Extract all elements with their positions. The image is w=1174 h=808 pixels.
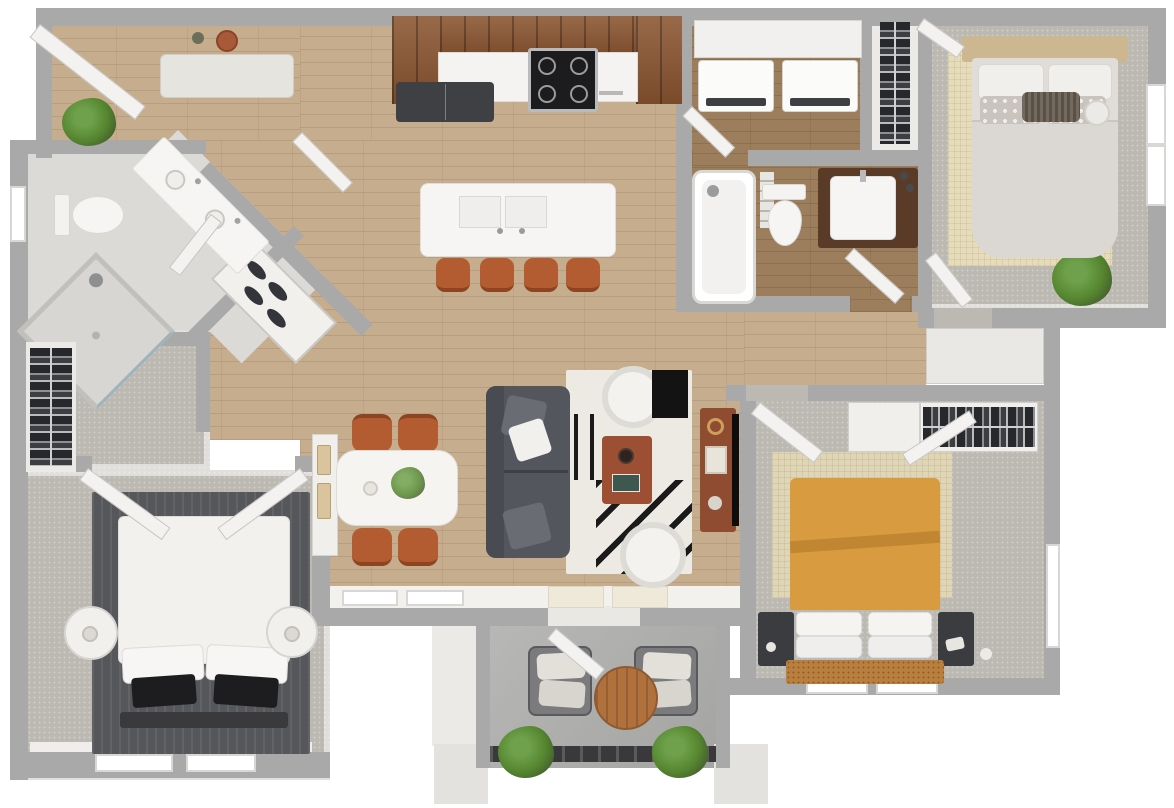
shower-head <box>707 185 719 197</box>
pillow <box>868 612 932 636</box>
centerpiece-plant <box>391 467 425 499</box>
vanity-sink <box>830 176 896 240</box>
entry-bench <box>160 54 294 98</box>
closet-rod <box>923 426 1035 428</box>
dining-chair <box>352 528 392 566</box>
shelf-item <box>241 283 266 308</box>
dried-flower-decor <box>980 648 992 660</box>
cutting-board <box>317 483 331 519</box>
barrel-chair <box>620 522 686 588</box>
shower-head <box>86 270 106 290</box>
toilet-tank <box>762 184 806 200</box>
coffee-table <box>602 436 652 504</box>
woven-headboard <box>786 660 944 684</box>
bedroom2-bed <box>118 516 290 742</box>
entry-sprig-decor <box>192 32 204 44</box>
wall-bedroom2-left <box>10 470 28 780</box>
range-stove <box>528 48 598 112</box>
round-wood-table <box>594 666 658 730</box>
dining-table <box>336 450 458 526</box>
bedroom1-plant <box>1052 250 1112 306</box>
pillow <box>796 636 862 658</box>
balcony-wall-right <box>716 618 730 768</box>
black-accent-table <box>652 370 688 418</box>
wall-living-bottom-left <box>312 608 548 626</box>
burner <box>570 57 588 75</box>
dining-wall-console <box>312 434 338 556</box>
rug-stripes-small <box>574 414 604 480</box>
table-cup <box>363 481 378 496</box>
shower-drain <box>90 330 101 341</box>
pillow <box>868 636 932 658</box>
island-faucet <box>497 228 503 234</box>
shelf-item <box>264 306 289 331</box>
bar-stool <box>480 258 514 292</box>
island-sink <box>459 196 501 228</box>
refrigerator <box>396 82 494 122</box>
nightstand-cup <box>284 626 300 642</box>
burner <box>538 57 556 75</box>
washer-controls <box>706 98 766 106</box>
doormat <box>548 586 604 608</box>
floor-plan-canvas <box>0 0 1174 808</box>
foot-bench <box>120 712 288 728</box>
doormat <box>612 586 668 608</box>
media-console <box>700 408 736 532</box>
dryer <box>782 60 858 112</box>
orange-duvet <box>790 478 940 610</box>
nightstand <box>938 612 974 666</box>
vanity-faucet <box>860 170 866 182</box>
laundry-shelf <box>694 20 862 58</box>
vanity-accessory <box>900 172 908 180</box>
bar-stool <box>566 258 600 292</box>
fridge-door-split <box>445 84 446 120</box>
towel-roll <box>1084 100 1110 126</box>
round-nightstand <box>64 606 118 660</box>
dining-chair <box>352 414 392 452</box>
living-window-2 <box>406 590 464 606</box>
nightstand-decor <box>945 636 965 651</box>
balcony-door-threshold <box>548 606 640 626</box>
duvet-fold <box>790 531 940 553</box>
console-decor-vase <box>708 496 722 510</box>
bathroom1-toilet <box>54 192 126 238</box>
sofa-cushion-split <box>504 470 568 473</box>
balcony-planter <box>652 726 708 778</box>
sofa <box>486 386 570 558</box>
console-decor-ring <box>707 418 724 435</box>
wall-right-connector <box>1044 310 1060 386</box>
bedroom1-doorway <box>934 308 992 328</box>
tv <box>732 414 739 526</box>
drawer-handle <box>599 91 623 95</box>
island-sink <box>505 196 547 228</box>
duvet <box>118 516 290 664</box>
nightstand-decor <box>766 642 776 652</box>
washer <box>698 60 774 112</box>
kitchen-cabinet-right <box>636 16 682 104</box>
balcony-planter <box>498 726 554 778</box>
wall-hat-decor <box>216 30 238 52</box>
duvet <box>972 120 1118 258</box>
console-decor-frame <box>705 446 727 474</box>
wall-bedroom3-right <box>1044 385 1060 695</box>
walkin-closet-clothes <box>30 348 72 466</box>
bedroom1-window <box>1146 84 1166 206</box>
bathtub <box>692 170 756 304</box>
closet-rod <box>50 348 52 466</box>
table-decor-book <box>612 474 640 492</box>
dining-chair <box>398 528 438 566</box>
sofa-back <box>486 386 504 558</box>
chair-cushion <box>538 679 586 708</box>
bathroom2-doorway <box>850 296 912 312</box>
shelf-item <box>265 279 290 304</box>
vanity-accessory <box>906 184 914 192</box>
burner <box>570 85 588 103</box>
nightstand-cup <box>82 626 98 642</box>
island-faucet <box>519 228 525 234</box>
bedroom2-window-2 <box>186 754 256 772</box>
toilet-bowl <box>72 196 124 234</box>
wall-bedroom1-left <box>918 8 932 324</box>
window-divider <box>1148 143 1164 147</box>
bathroom1-window <box>10 186 26 242</box>
sofa-pillow-gray <box>502 502 552 551</box>
kitchen-island <box>420 183 616 257</box>
bedroom1-bed <box>972 58 1118 256</box>
black-pillow <box>131 674 197 708</box>
wall-closet-right <box>196 332 210 432</box>
living-window-1 <box>342 590 398 606</box>
dining-chair <box>398 414 438 452</box>
toilet-tank <box>54 194 70 236</box>
bar-stool <box>436 258 470 292</box>
dryer-controls <box>790 98 850 106</box>
basket <box>1022 92 1080 122</box>
bedroom3-doorway <box>746 385 808 401</box>
closet-rod <box>894 22 896 144</box>
bedroom1-closet-block <box>926 328 1044 384</box>
round-nightstand <box>266 606 318 658</box>
vanity-faucet <box>233 217 241 225</box>
black-pillow <box>213 674 279 708</box>
right-hall-floor <box>744 310 926 387</box>
bedroom3-bed <box>790 478 940 684</box>
nightstand <box>758 612 794 666</box>
table-decor-bowl <box>618 448 634 464</box>
vanity-faucet <box>194 177 202 185</box>
pillow <box>796 612 862 636</box>
balcony-wall-left <box>476 618 490 768</box>
tub-basin <box>702 180 746 294</box>
wall-bedroom3-left <box>740 385 756 695</box>
bathroom2-vanity <box>818 168 918 248</box>
cutting-board <box>317 445 331 475</box>
burner <box>538 85 556 103</box>
vanity-sink <box>161 166 189 194</box>
entry-plant <box>62 98 116 146</box>
bedroom2-window-1 <box>95 754 173 772</box>
hall-closet-clothes <box>880 22 910 144</box>
bar-stool <box>524 258 558 292</box>
bedroom3-window-right <box>1046 544 1060 648</box>
